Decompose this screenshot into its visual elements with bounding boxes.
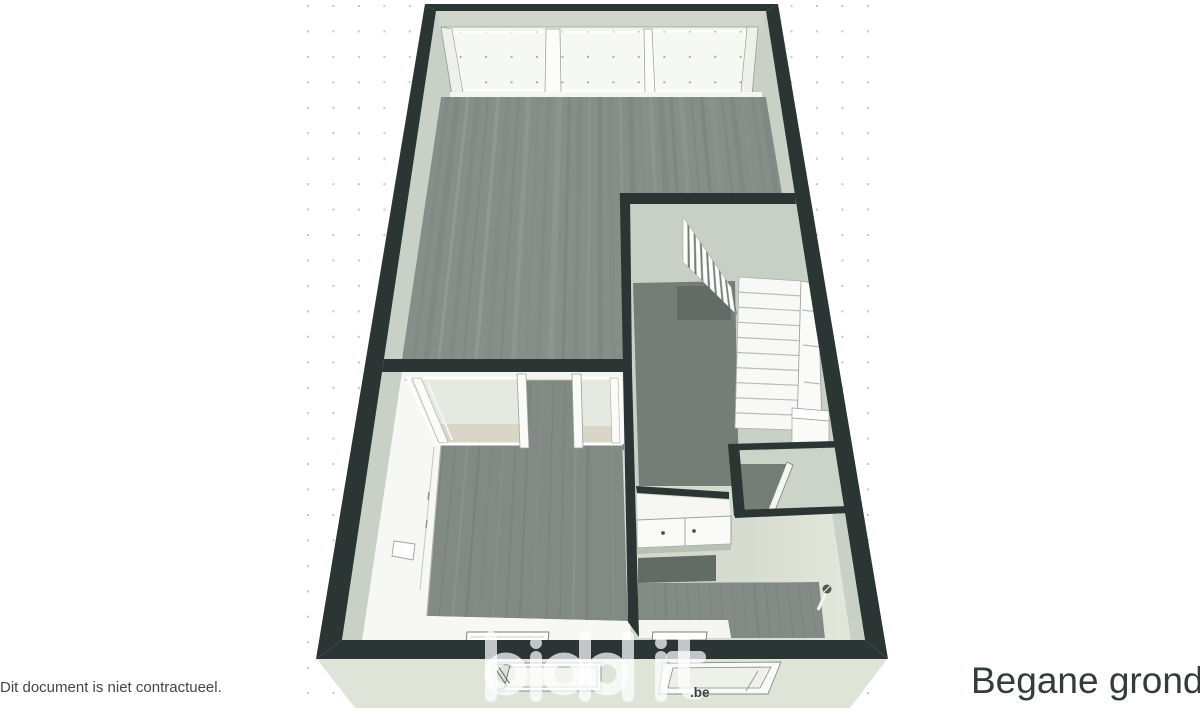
svg-text:Begane grond: Begane grond bbox=[971, 660, 1200, 701]
svg-text:Dit document is niet contractu: Dit document is niet contractueel. bbox=[0, 679, 222, 696]
svg-text:.be: .be bbox=[690, 685, 710, 700]
